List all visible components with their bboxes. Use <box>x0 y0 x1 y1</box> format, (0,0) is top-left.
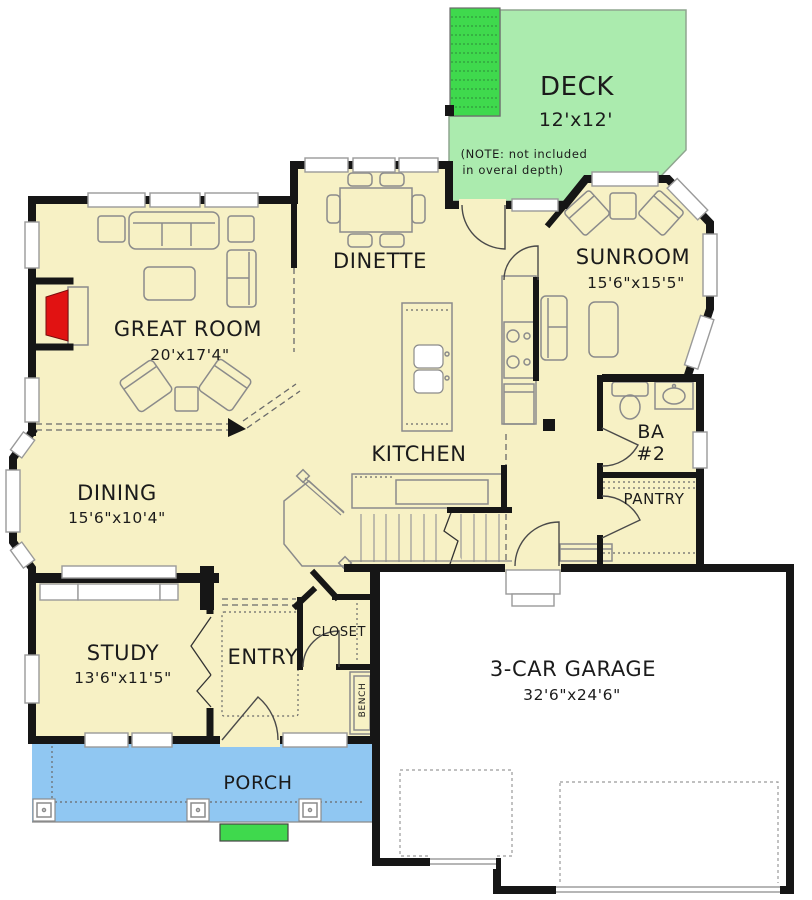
garage-step <box>506 570 560 606</box>
sink-basin <box>414 345 443 368</box>
deck-dims: 12'x12' <box>539 109 613 131</box>
garage-floor <box>376 568 790 890</box>
study-label: STUDY <box>87 641 159 665</box>
fireplace <box>46 290 68 341</box>
window <box>399 158 438 172</box>
window <box>25 655 39 703</box>
garage-label: 3-CAR GARAGE <box>490 657 656 681</box>
dining-dims: 15'6"x10'4" <box>68 509 166 527</box>
porch-label: PORCH <box>223 772 292 794</box>
dining-label: DINING <box>77 481 157 505</box>
floor-plan-drawing: DECK 12'x12' (NOTE: not included in over… <box>0 0 812 900</box>
garage-dims: 32'6"x24'6" <box>523 686 621 704</box>
great-room-label: GREAT ROOM <box>114 317 262 341</box>
bench-label: BENCH <box>358 683 368 718</box>
window <box>693 432 707 468</box>
window <box>512 199 558 211</box>
floor-plan-page: DECK 12'x12' (NOTE: not included in over… <box>0 0 812 900</box>
porch-column <box>299 799 321 821</box>
window <box>150 193 200 207</box>
porch-column <box>33 799 55 821</box>
window <box>305 158 348 172</box>
window <box>25 222 39 268</box>
deck-door-opening <box>459 199 506 211</box>
porch-column <box>187 799 209 821</box>
deck-stair-wall-stub <box>445 105 454 116</box>
window <box>25 378 39 422</box>
sink-basin <box>414 370 443 393</box>
great-room-dims: 20'x17'4" <box>150 346 230 364</box>
window <box>592 172 658 186</box>
deck-label: DECK <box>540 72 614 102</box>
window <box>283 733 347 747</box>
garage-door-opening-right <box>556 883 780 897</box>
porch-step <box>220 824 288 841</box>
window <box>6 470 20 532</box>
window <box>85 733 128 747</box>
window <box>353 158 395 172</box>
closet-label: CLOSET <box>312 625 366 640</box>
study-dims: 13'6"x11'5" <box>74 669 172 687</box>
pantry-label: PANTRY <box>624 490 685 508</box>
wall-stub <box>543 419 555 431</box>
window <box>703 234 717 296</box>
entry-label: ENTRY <box>228 645 299 669</box>
sunroom-dims: 15'6"x15'5" <box>587 274 685 292</box>
dinette-label: DINETTE <box>333 249 427 273</box>
bath2-label-line1: BA <box>637 421 664 443</box>
window <box>205 193 258 207</box>
kitchen-label: KITCHEN <box>371 442 466 466</box>
sunroom-label: SUNROOM <box>576 245 690 269</box>
front-door-opening <box>220 734 280 747</box>
bath2-label-line2: #2 <box>636 443 665 465</box>
deck-note-line2: in overal depth) <box>462 163 563 177</box>
window <box>132 733 172 747</box>
deck-note-line1: (NOTE: not included <box>461 147 588 161</box>
window <box>88 193 145 207</box>
garage-door-opening-left <box>430 855 496 869</box>
